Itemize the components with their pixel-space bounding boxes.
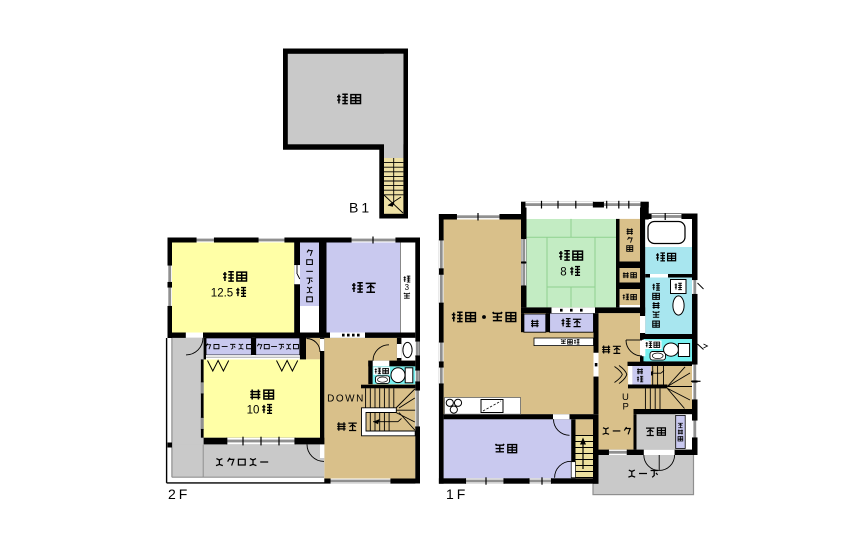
svg-text:3: 3: [405, 283, 410, 292]
svg-text:1F: 1F: [446, 486, 468, 502]
svg-text:P: P: [623, 402, 629, 413]
svg-text:8: 8: [560, 267, 566, 279]
svg-text:2F: 2F: [168, 486, 190, 502]
svg-text:12.5: 12.5: [211, 288, 233, 300]
svg-text:10: 10: [247, 405, 260, 417]
svg-text:DOWN: DOWN: [327, 394, 365, 405]
svg-text:B1: B1: [349, 200, 372, 216]
